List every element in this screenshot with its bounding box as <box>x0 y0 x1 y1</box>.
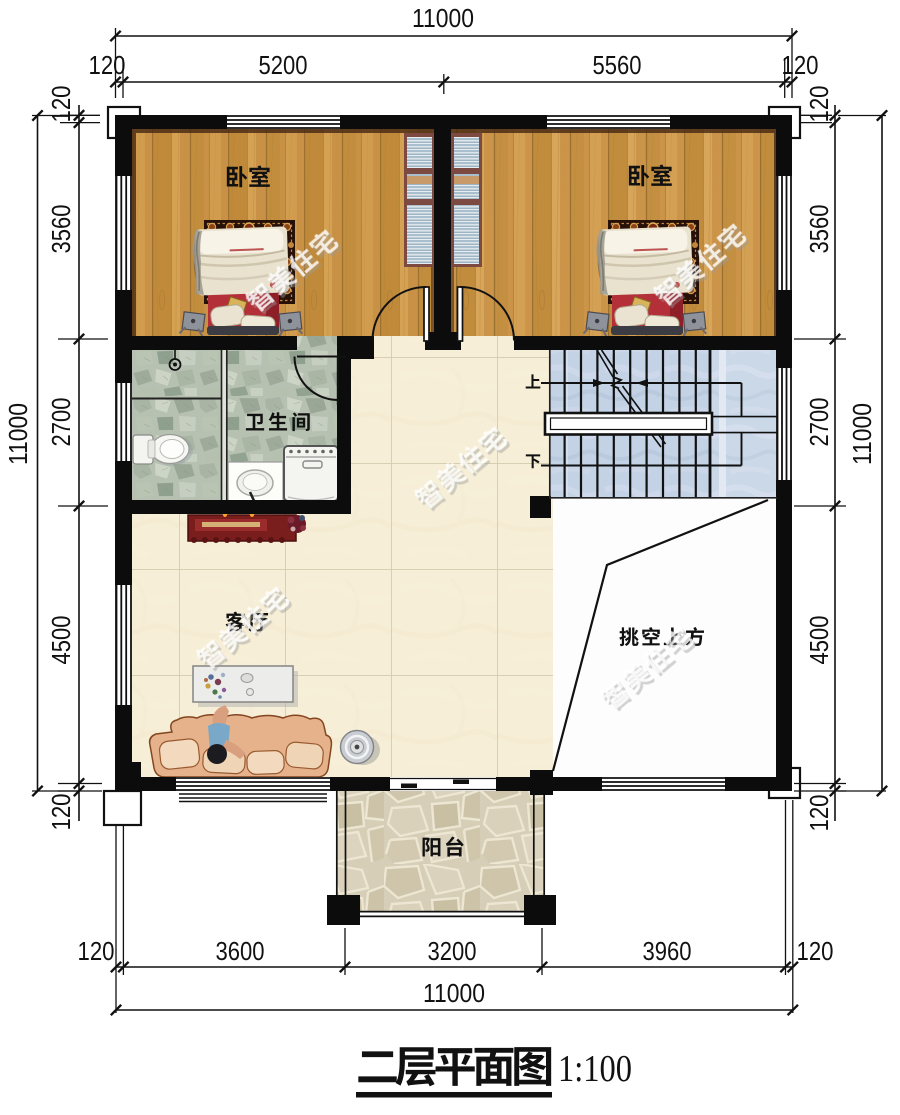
svg-text:5200: 5200 <box>259 50 308 80</box>
svg-text:120: 120 <box>804 86 834 123</box>
svg-text:1:100: 1:100 <box>558 1048 632 1090</box>
svg-text:3560: 3560 <box>804 205 834 254</box>
svg-text:120: 120 <box>782 50 819 80</box>
svg-text:120: 120 <box>804 795 834 832</box>
svg-text:120: 120 <box>78 936 115 966</box>
svg-text:120: 120 <box>89 50 126 80</box>
svg-text:11000: 11000 <box>847 403 877 465</box>
svg-text:4500: 4500 <box>46 616 76 665</box>
svg-text:3600: 3600 <box>216 936 265 966</box>
svg-text:3200: 3200 <box>428 936 477 966</box>
svg-text:120: 120 <box>46 794 76 831</box>
svg-text:120: 120 <box>46 86 76 123</box>
svg-text:120: 120 <box>797 936 834 966</box>
svg-text:11000: 11000 <box>423 978 485 1008</box>
svg-text:3560: 3560 <box>46 205 76 254</box>
svg-text:2700: 2700 <box>46 398 76 447</box>
svg-text:11000: 11000 <box>412 3 474 33</box>
svg-text:2700: 2700 <box>804 398 834 447</box>
svg-text:11000: 11000 <box>3 403 33 465</box>
svg-text:3960: 3960 <box>643 936 692 966</box>
svg-text:4500: 4500 <box>804 616 834 665</box>
svg-text:5560: 5560 <box>593 50 642 80</box>
